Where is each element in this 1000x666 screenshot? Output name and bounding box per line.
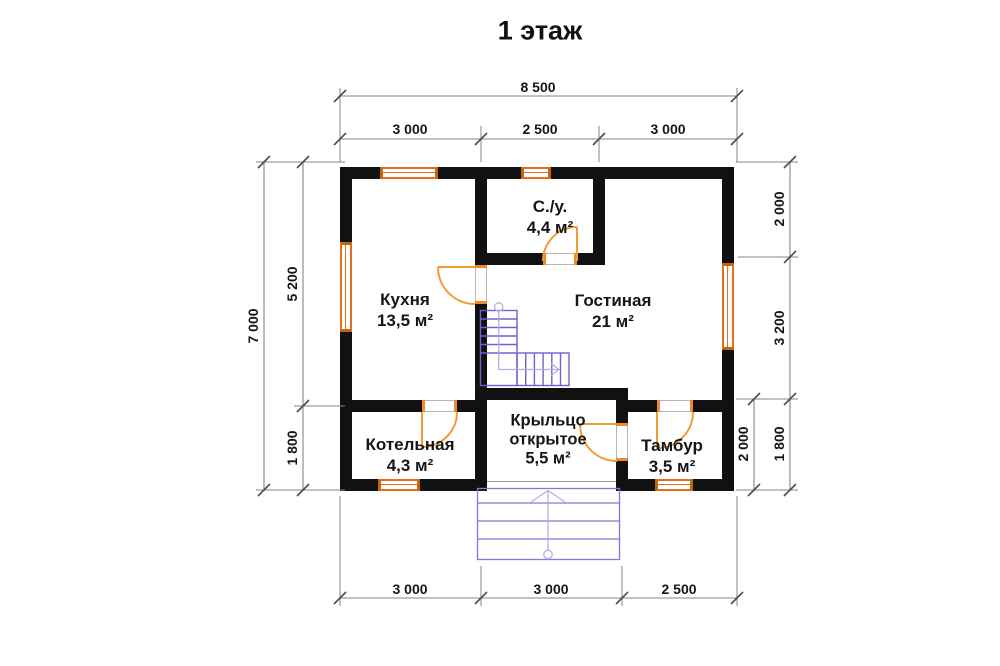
room-area: 5,5 м² (509, 450, 586, 469)
porch-steps (478, 489, 620, 560)
room-name: Кухня (377, 289, 433, 310)
dim-label-left-overall: 7 000 (245, 308, 261, 343)
dim-label-right-seg2: 3 200 (771, 310, 787, 345)
room-area: 4,4 м² (527, 217, 574, 238)
dim-label-top-seg2: 2 500 (522, 121, 557, 137)
dim-label-top-overall: 8 500 (520, 79, 555, 95)
extension-lines (256, 88, 798, 606)
dim-label-bottom-seg1: 3 000 (392, 581, 427, 597)
room-area: 13,5 м² (377, 310, 433, 331)
stairs-walk-line (495, 303, 560, 376)
room-label-tambour: Тамбур 3,5 м² (641, 435, 703, 477)
plan-linework (0, 0, 1000, 666)
room-name-2: открытое (509, 431, 586, 450)
dim-label-top-seg3: 3 000 (650, 121, 685, 137)
porch-up-arrow (531, 491, 565, 503)
door-opening-kitchen (475, 265, 487, 304)
window-kitchen-left (340, 242, 352, 332)
floor-plan-page: 1 этаж (0, 0, 1000, 666)
door-opening-tambour-entry (657, 400, 693, 412)
window-boiler-bottom (378, 479, 420, 491)
door-opening-boiler (422, 400, 457, 412)
walk-line-start-circle (495, 303, 503, 311)
dim-label-right-seg3: 1 800 (771, 426, 787, 461)
room-label-living: Гостиная 21 м² (575, 290, 652, 332)
wall-interior-hall-porch (475, 388, 628, 400)
dim-label-bottom-seg2: 3 000 (533, 581, 568, 597)
room-area: 4,3 м² (365, 455, 454, 476)
dim-label-right-seg1: 2 000 (771, 191, 787, 226)
porch-tread-lines (478, 503, 620, 539)
door-arc-kitchen (438, 267, 475, 304)
room-name: Гостиная (575, 290, 652, 311)
room-label-bathroom: С./у. 4,4 м² (527, 196, 574, 238)
room-name: Крыльцо (509, 412, 586, 431)
dim-label-left-seg1: 5 200 (284, 266, 300, 301)
dim-label-left-seg2: 1 800 (284, 430, 300, 465)
stairs-treads-horizontal (526, 353, 561, 386)
walk-line-path (499, 311, 558, 369)
room-name: Котельная (365, 434, 454, 455)
room-label-boiler: Котельная 4,3 м² (365, 434, 454, 476)
dim-label-tambour-height: 2 000 (735, 426, 751, 461)
door-opening-bathroom (543, 253, 577, 265)
door-opening-porch-tambour (616, 423, 628, 461)
room-label-porch: Крыльцо открытое 5,5 м² (509, 412, 586, 469)
room-name: С./у. (527, 196, 574, 217)
stairs (481, 311, 570, 386)
walk-line-arrow (551, 364, 559, 376)
window-bathroom-top (521, 167, 551, 179)
porch-outline (478, 489, 620, 560)
window-tambour-bottom (655, 479, 693, 491)
page-title: 1 этаж (498, 16, 582, 47)
wall-interior-kitchen-hall (475, 179, 487, 479)
room-area: 3,5 м² (641, 456, 703, 477)
window-living-right (722, 263, 734, 350)
room-name: Тамбур (641, 435, 703, 456)
room-area: 21 м² (575, 311, 652, 332)
wall-interior-bathroom-bottom (475, 253, 605, 265)
dim-label-top-seg1: 3 000 (392, 121, 427, 137)
porch-walk-circle (544, 550, 552, 558)
room-label-kitchen: Кухня 13,5 м² (377, 289, 433, 331)
dim-label-bottom-seg3: 2 500 (661, 581, 696, 597)
stairs-flight-horizontal (517, 353, 569, 386)
window-kitchen-top (380, 167, 438, 179)
porch-walk-line (531, 491, 565, 559)
